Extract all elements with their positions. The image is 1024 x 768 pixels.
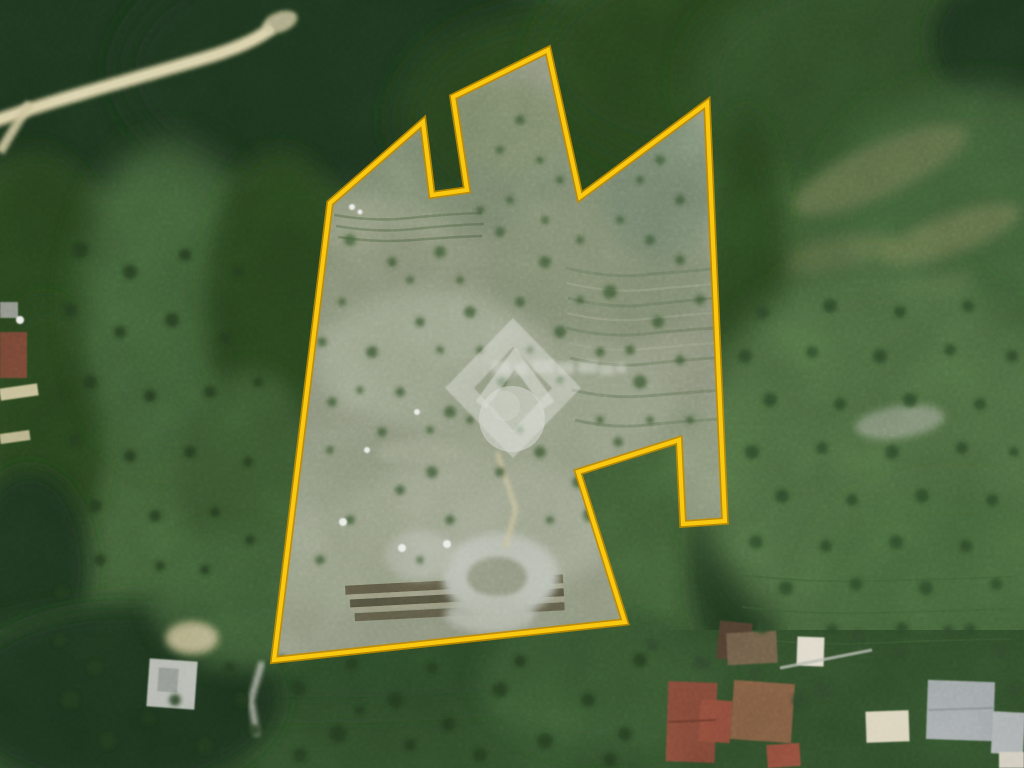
- text-blob: [600, 364, 614, 375]
- text-blob: [558, 362, 574, 374]
- text-blob: [514, 363, 528, 375]
- satellite-image-canvas: [0, 0, 1024, 768]
- text-blob: [578, 361, 598, 374]
- text-blob: [492, 361, 511, 375]
- logo-circle-highlight: [490, 391, 520, 421]
- text-blob: [616, 363, 626, 373]
- text-blob: [532, 360, 554, 374]
- image-grain-fine: [0, 0, 1024, 768]
- satellite-photo: [0, 0, 1024, 768]
